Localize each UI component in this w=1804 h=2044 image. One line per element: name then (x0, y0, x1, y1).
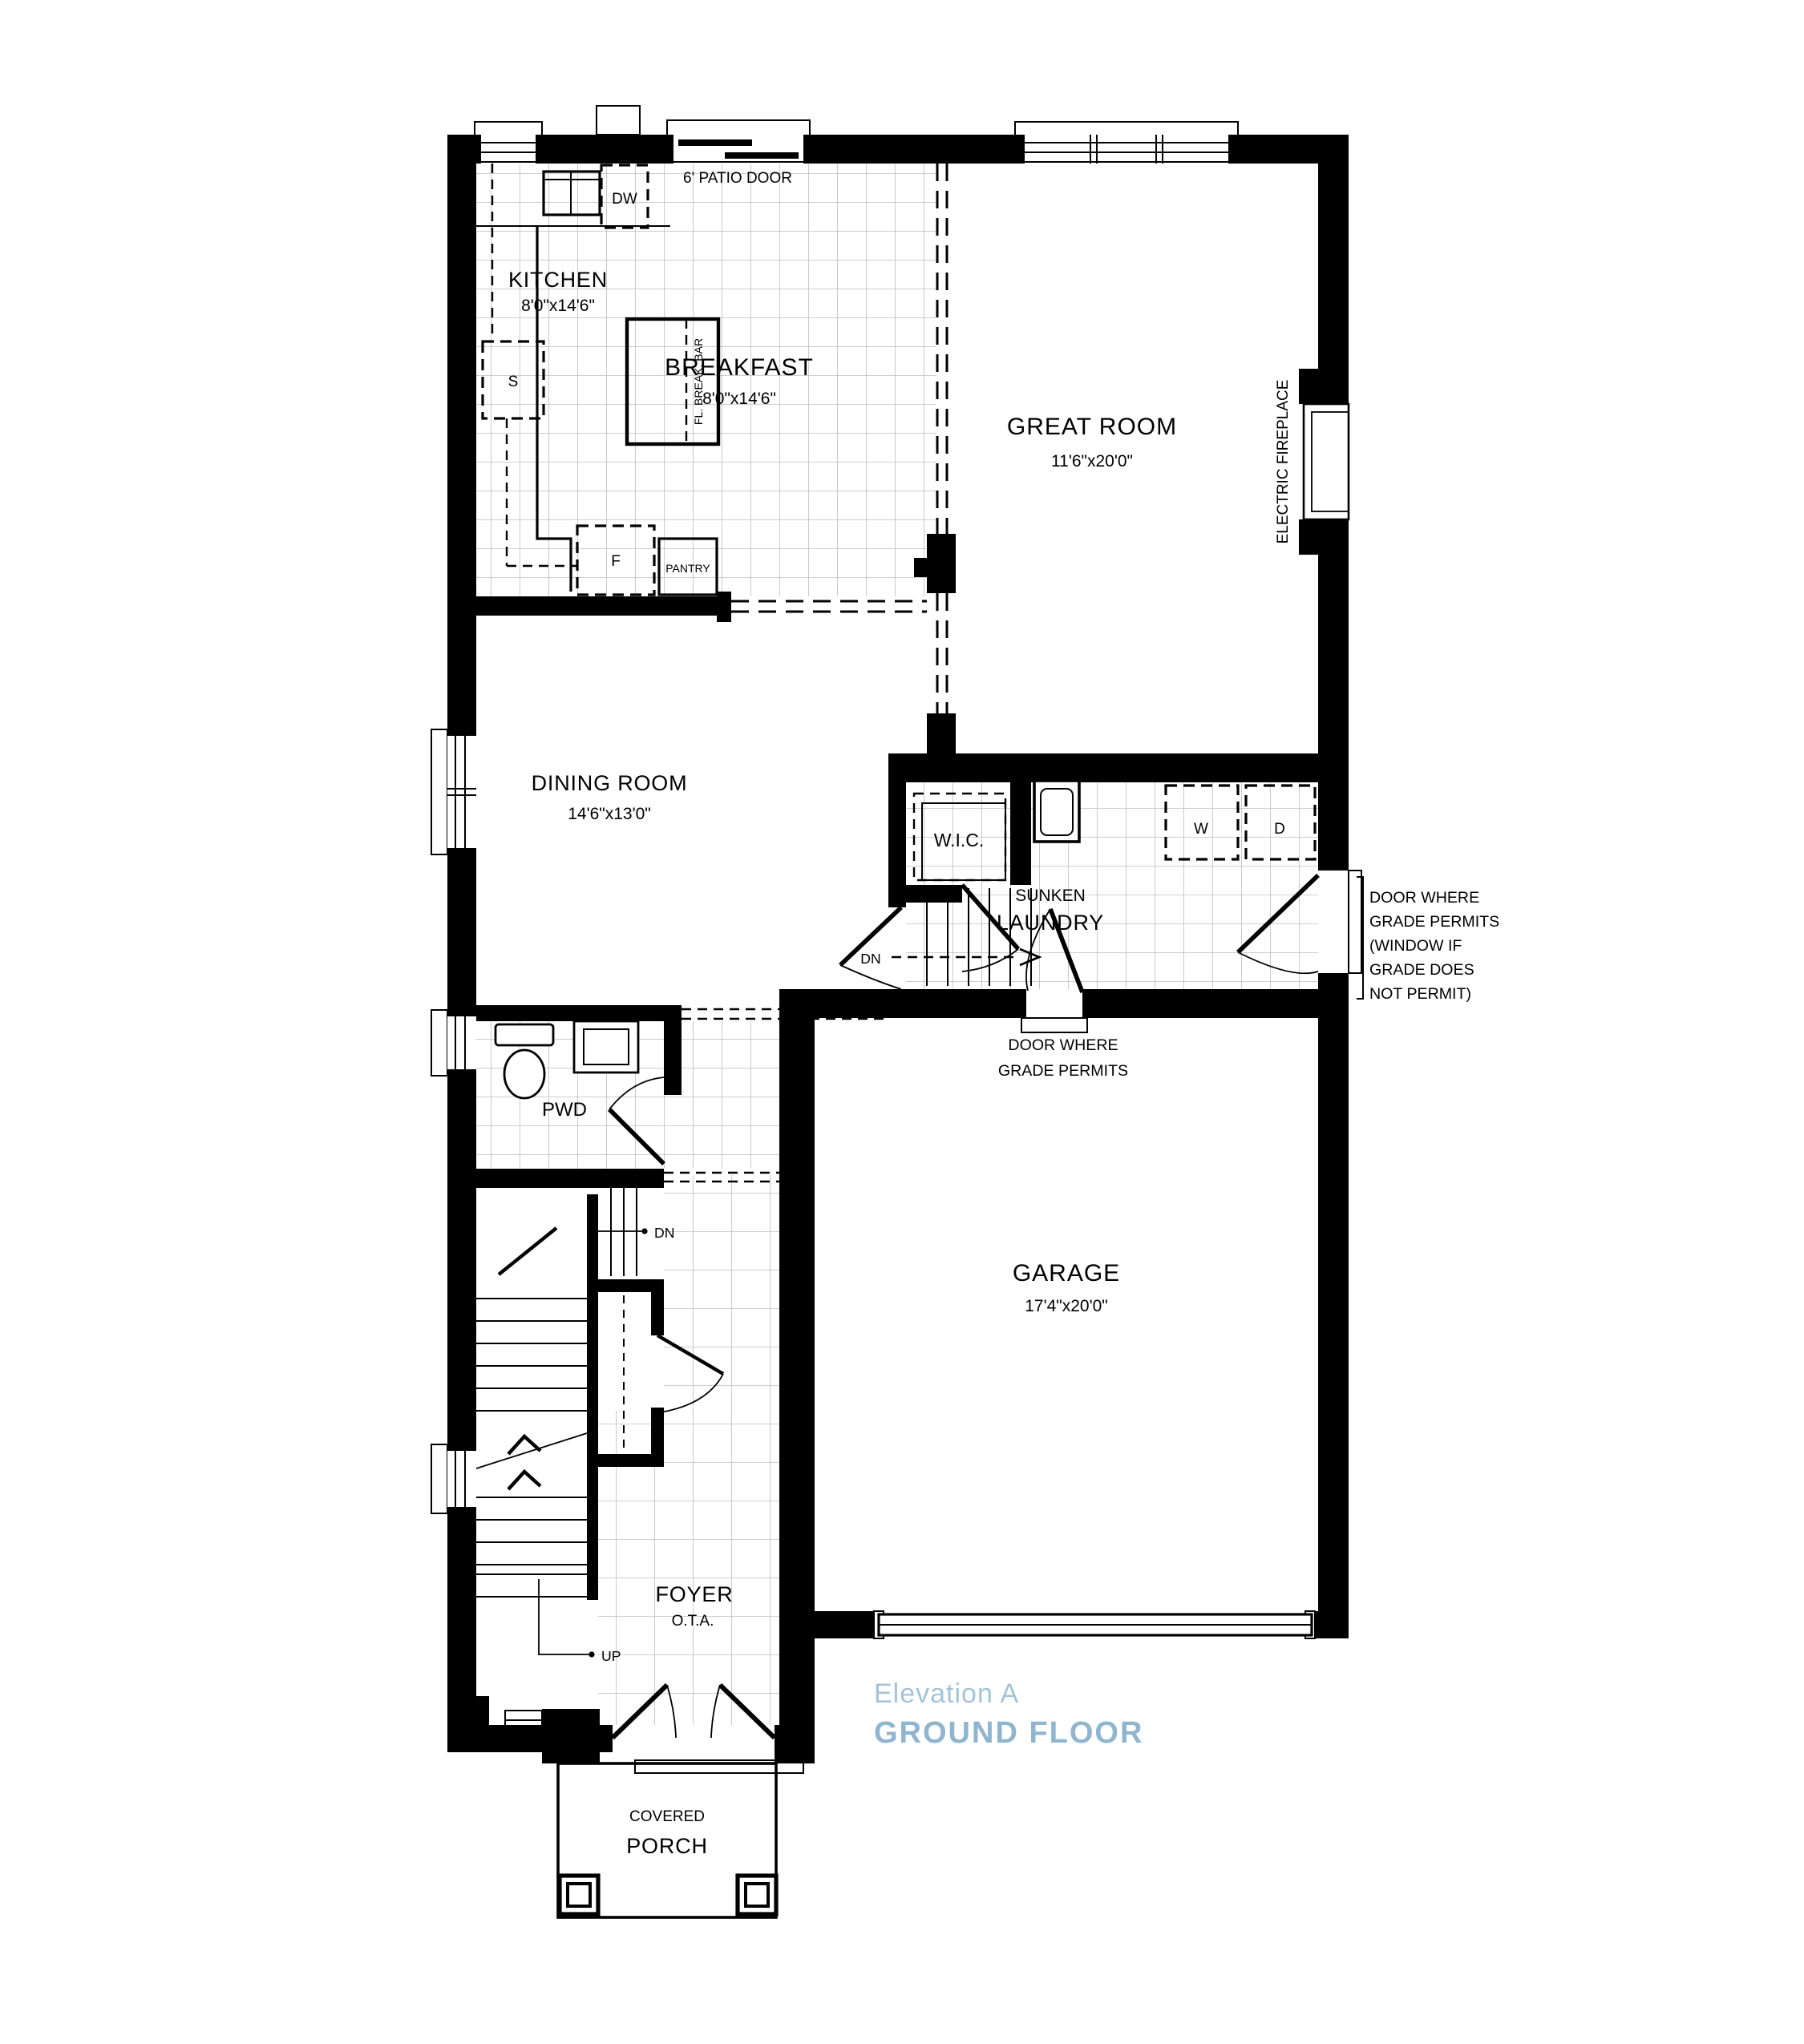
pwd-label: PWD (542, 1099, 587, 1121)
wic-right-wall (1010, 753, 1031, 885)
closet-right-wall-a (651, 1279, 664, 1335)
top-wall-post-2 (803, 135, 831, 164)
bottom-door-note-1: DOOR WHERE (1008, 1036, 1118, 1054)
garage-label: GARAGE (1013, 1260, 1120, 1287)
porch-column-right-inner (746, 1884, 768, 1906)
breakfast-bar-label: FL. BREAK. BAR (692, 338, 705, 425)
garage-foyer-wall (779, 989, 815, 1725)
kitchen-dining-wall (447, 596, 717, 616)
toilet-bowl (504, 1050, 544, 1098)
wic-label: W.I.C. (934, 830, 985, 850)
laundry-bottom-wall-b (1082, 989, 1349, 1018)
kitchen-window-opening (481, 135, 536, 164)
right-door-note-2: GRADE PERMITS (1369, 913, 1499, 931)
right-door-note-5: NOT PERMIT) (1369, 985, 1471, 1003)
porch-pier-left (542, 1709, 600, 1763)
left-wall-a (447, 135, 476, 736)
wic-corner (1010, 866, 1031, 885)
top-wall-c (831, 135, 1025, 164)
patio-door-panel-2 (725, 152, 799, 159)
laundry-label-1: SUNKEN (1015, 887, 1086, 905)
dn-label-lower: DN (654, 1225, 674, 1241)
pwd-window-opening (447, 1016, 476, 1069)
kitchen-dims: 8'0"x14'6" (521, 297, 595, 315)
greatroom-window-opening (1025, 135, 1228, 164)
pwd-top-wall (447, 1005, 682, 1021)
garage-front-wall-b (1315, 1611, 1349, 1638)
breakfast-label: BREAKFAST (665, 354, 814, 381)
stair-window-opening (447, 1451, 476, 1507)
fireplace-label: ELECTRIC FIREPLACE (1275, 380, 1292, 544)
garage-front-wall-a (815, 1611, 874, 1638)
laundry-top-wall (888, 753, 1349, 782)
top-wall-post-1 (536, 135, 564, 164)
left-wall-d (447, 1507, 476, 1725)
boundary-post-jut (914, 558, 927, 577)
fireplace-niche (1304, 404, 1349, 519)
greatroom-label: GREAT ROOM (1007, 414, 1177, 440)
boundary-post-upper (927, 534, 956, 593)
kitchen-sink-label: S (508, 374, 519, 390)
pantry-label: PANTRY (665, 562, 710, 575)
dn-walkline-dot (641, 1228, 647, 1234)
closet-bottom-wall (587, 1454, 664, 1467)
kitchen-label: KITCHEN (508, 268, 608, 292)
laundry-label-2: LAUNDRY (997, 911, 1104, 935)
patio-door-label: 6' PATIO DOOR (683, 170, 792, 187)
floor-title: GROUND FLOOR (874, 1716, 1143, 1750)
patio-door-opening (673, 135, 803, 164)
right-door-note-3: (WINDOW IF (1369, 937, 1462, 955)
front-wall-b (600, 1725, 613, 1752)
fridge-label: F (611, 553, 621, 570)
dishwasher-label: DW (612, 191, 637, 208)
porch-label-1: COVERED (629, 1808, 705, 1825)
fireplace-bump-top (1299, 369, 1349, 404)
garage-dims: 17'4"x20'0" (1025, 1297, 1108, 1315)
washer-label: W (1194, 821, 1208, 838)
toilet-tank (495, 1024, 553, 1045)
dryer-label: D (1274, 821, 1285, 838)
bottom-door-note-2: GRADE PERMITS (998, 1062, 1128, 1080)
up-label: UP (601, 1648, 621, 1664)
up-walkline-dot (589, 1651, 594, 1657)
greatroom-dims: 11'6"x20'0" (1051, 452, 1133, 471)
dn-label-upper: DN (860, 951, 880, 967)
dining-window-opening (447, 736, 476, 848)
wic-bottom-wall (888, 885, 962, 903)
right-door-note-1: DOOR WHERE (1369, 889, 1479, 907)
right-door-note-4: GRADE DOES (1369, 961, 1474, 979)
left-wall-b (447, 848, 476, 1016)
porch-label-2: PORCH (626, 1834, 708, 1858)
pwd-bottom-wall (476, 1169, 664, 1188)
dining-label: DINING ROOM (532, 771, 688, 795)
right-wall-b (1318, 973, 1349, 1638)
foyer-ota-label: O.T.A. (672, 1613, 714, 1630)
floor-plan: ELECTRIC FIREPLACE DW S F PANTRY FL. BRE… (0, 0, 1804, 2044)
boundary-post-lower (927, 713, 956, 757)
breakfast-dims: 8'0"x14'6" (702, 390, 776, 408)
left-wall-c (447, 1069, 476, 1451)
elevation-title: Elevation A (874, 1678, 1019, 1709)
foyer-label: FOYER (655, 1582, 733, 1606)
kitchen-wall-cap (717, 592, 731, 622)
fireplace-bump-bottom (1299, 519, 1349, 555)
wic-left-wall (888, 753, 906, 907)
fireplace: ELECTRIC FIREPLACE (1275, 369, 1349, 555)
front-wall-c (775, 1725, 815, 1763)
dining-dims: 14'6"x13'0" (568, 805, 651, 823)
top-wall-b (564, 135, 673, 164)
patio-door-panel-1 (678, 139, 752, 146)
stair-partition (587, 1194, 598, 1600)
porch-column-left-inner (568, 1884, 590, 1906)
laundry-bottom-wall-a (815, 989, 1026, 1018)
pwd-right-wall (664, 1005, 682, 1095)
